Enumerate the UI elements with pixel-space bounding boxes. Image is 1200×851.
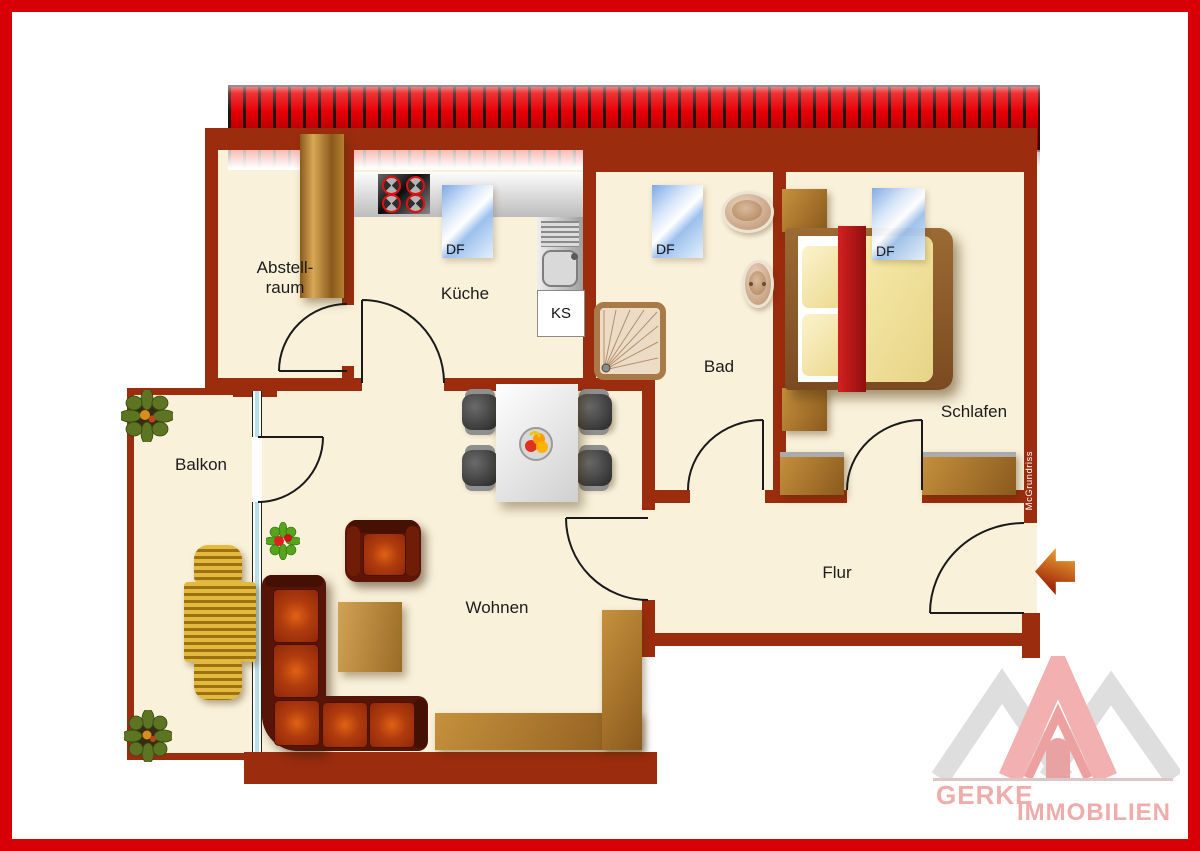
watermark-text: McGrundriss bbox=[1024, 451, 1035, 510]
room-label-bad: Bad bbox=[679, 357, 759, 377]
door-balkon bbox=[258, 437, 323, 502]
watermark-container: McGrundriss bbox=[1021, 438, 1037, 523]
door-wohnen-flur bbox=[566, 518, 648, 600]
room-label-balkon: Balkon bbox=[151, 455, 251, 475]
door-kueche bbox=[362, 300, 444, 383]
floorplan-canvas: DF KS DF DF bbox=[0, 0, 1200, 851]
door-bad bbox=[688, 420, 763, 490]
room-label-line: Abstell- bbox=[235, 258, 335, 278]
door-abstellraum bbox=[279, 304, 347, 371]
door-entrance bbox=[930, 523, 1024, 613]
brand-name-2: IMMOBILIEN bbox=[1017, 799, 1171, 827]
logo-roof-peaks-icon bbox=[930, 656, 1180, 781]
room-label-wohnen: Wohnen bbox=[447, 598, 547, 618]
room-label-line: raum bbox=[235, 278, 335, 298]
room-label-kueche: Küche bbox=[415, 284, 515, 304]
room-label-flur: Flur bbox=[787, 563, 887, 583]
room-label-abstellraum: Abstell- raum bbox=[235, 258, 335, 298]
room-label-schlafen: Schlafen bbox=[924, 402, 1024, 422]
door-schlafen bbox=[847, 420, 922, 490]
